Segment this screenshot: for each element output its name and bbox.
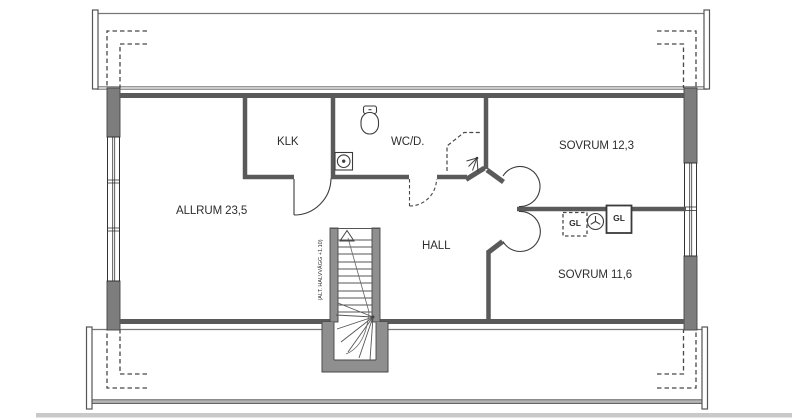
room-label-hall: HALL	[422, 240, 450, 252]
right-window	[685, 163, 697, 256]
room-label-sovrum-2: SOVRUM 11,6	[558, 269, 632, 281]
room-label-wc: WC/D.	[391, 136, 424, 148]
vent-icon	[588, 214, 604, 230]
closet-label-gl-right: GL	[606, 213, 632, 223]
sovrum2-door	[503, 211, 540, 251]
closet-label-gl-left: GL	[563, 218, 587, 228]
staircase	[322, 228, 388, 372]
bottom-strip	[36, 413, 792, 418]
left-window	[108, 137, 120, 281]
bottom-eave-band	[87, 327, 708, 409]
shower-enclosure	[447, 133, 482, 172]
wc-door	[410, 179, 437, 206]
sink-icon	[335, 153, 353, 171]
stair-direction-arrow-icon	[340, 231, 354, 242]
shower-head-icon	[467, 157, 479, 172]
klk-door	[294, 179, 331, 216]
top-eave-band	[93, 10, 710, 89]
room-label-klk: KLK	[277, 136, 298, 148]
stair-well-walls	[322, 228, 388, 372]
floor-plan: ALLRUM 23,5 KLK WC/D. SOVRUM 12,3 HALL S…	[0, 0, 800, 419]
sovrum1-door	[503, 167, 540, 207]
room-label-allrum: ALLRUM 23,5	[176, 205, 247, 217]
toilet-icon	[361, 106, 379, 134]
room-label-sovrum-1: SOVRUM 12,3	[559, 140, 634, 152]
stair-note: (ALT. HALVVÄGG +1.10)	[318, 230, 324, 310]
floor-plan-drawing	[0, 0, 800, 419]
